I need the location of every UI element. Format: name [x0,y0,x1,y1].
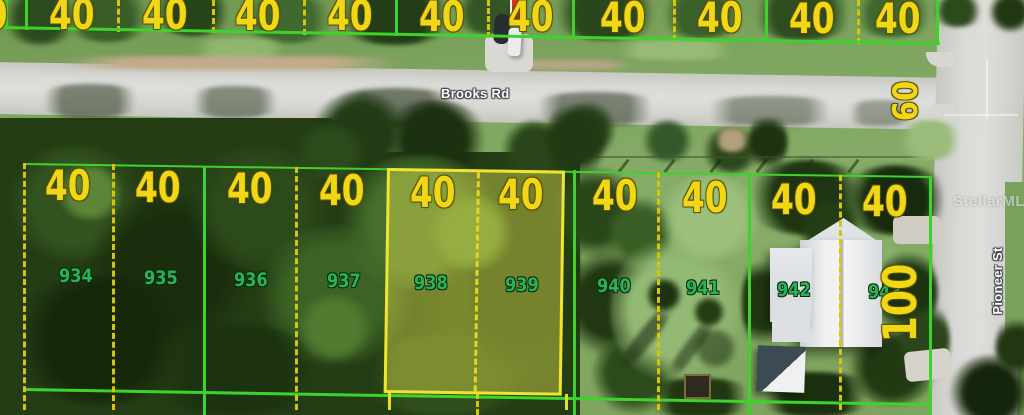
grass-patch [895,120,965,160]
shed-roof [756,345,806,393]
parcel-line-solid [572,0,575,39]
lot-number-label: 934 [59,267,93,286]
road-shadow-blob [180,86,290,118]
lot-width-label: 40 [498,174,544,216]
lot-number-label: 937 [327,272,361,291]
parcel-line-solid [395,0,398,36]
lot-width-label: 40 [410,172,456,214]
lot-width-label: 40 [508,0,554,38]
lot-number-label: 941 [686,279,720,298]
parcel-divider-dashed [474,172,480,391]
parcel-line-solid [748,173,751,415]
lot-width-label-partial: 40 [0,0,8,36]
lot-width-label: 40 [45,165,91,207]
parcel-line-solid [203,166,206,415]
lot-width-label: 40 [235,0,281,37]
corner-side-dimension-label: 60 [884,81,928,120]
grass-patch [600,40,750,60]
brooks-rd-label: Brooks Rd [441,86,509,101]
parcel-line-solid [573,170,576,415]
parcel-line-solid [929,176,932,415]
house-roof-cross-wing [772,300,810,342]
dirt-patch [712,128,752,152]
aerial-parcel-map: 40 40 40 40 40 40 40 40 40 40 40 40 40 4… [0,0,1024,415]
dirt-shoulder [0,56,460,70]
lot-depth-dimension-label: 100 [880,271,920,335]
fence-line [560,156,932,158]
parcel-line-dashed [212,0,215,33]
parcel-line-dashed [295,167,298,410]
lot-width-label: 40 [789,0,835,40]
driveway-patch [904,348,953,383]
lot-width-label: 40 [862,181,908,223]
lot-width-label: 40 [419,0,465,38]
lot-width-label: 40 [600,0,646,39]
road-shadow-blob [30,84,150,118]
mls-watermark: StellarMLS [953,193,1024,210]
parcel-line-solid [388,393,391,410]
parcel-line-solid [936,0,939,45]
parcel-line-dashed [303,0,306,35]
lot-number-label: 940 [597,277,631,296]
lot-number-label: 938 [414,274,448,293]
lot-number-label: 935 [144,269,178,288]
lot-number-label: 936 [234,271,268,290]
tree-shadow [692,328,738,368]
parcel-line-dashed [23,163,26,410]
road-paint-line [944,114,1018,116]
parcel-line-dashed [112,164,115,410]
tree-canopy-blob [295,295,375,360]
lot-width-label: 40 [135,167,181,209]
lot-number-label: 942 [777,281,811,300]
parcel-line-solid [565,394,568,410]
parcel-line-dashed [673,0,676,41]
lot-width-label: 40 [49,0,95,36]
road-paint-line [986,58,988,118]
lot-width-label: 40 [142,0,188,36]
lot-width-label: 40 [697,0,743,39]
lot-width-label: 40 [875,0,921,40]
lot-width-label: 40 [327,0,373,37]
parcel-line-dashed [657,172,660,410]
parcel-line-dashed [857,0,860,44]
lot-width-label: 40 [682,177,728,219]
pioneer-st-label: Pioneer St [989,241,1005,321]
lot-width-label: 40 [319,170,365,212]
parcel-line-dashed [487,0,490,38]
parcel-line-dashed [839,175,842,410]
fire-pit [684,374,711,399]
lot-width-label: 40 [227,168,273,210]
parcel-line-solid [765,0,768,42]
lot-width-label: 40 [771,179,817,221]
lot-number-label: 939 [505,276,539,295]
lot-width-label: 40 [592,175,638,217]
parcel-line-dashed [476,393,479,415]
